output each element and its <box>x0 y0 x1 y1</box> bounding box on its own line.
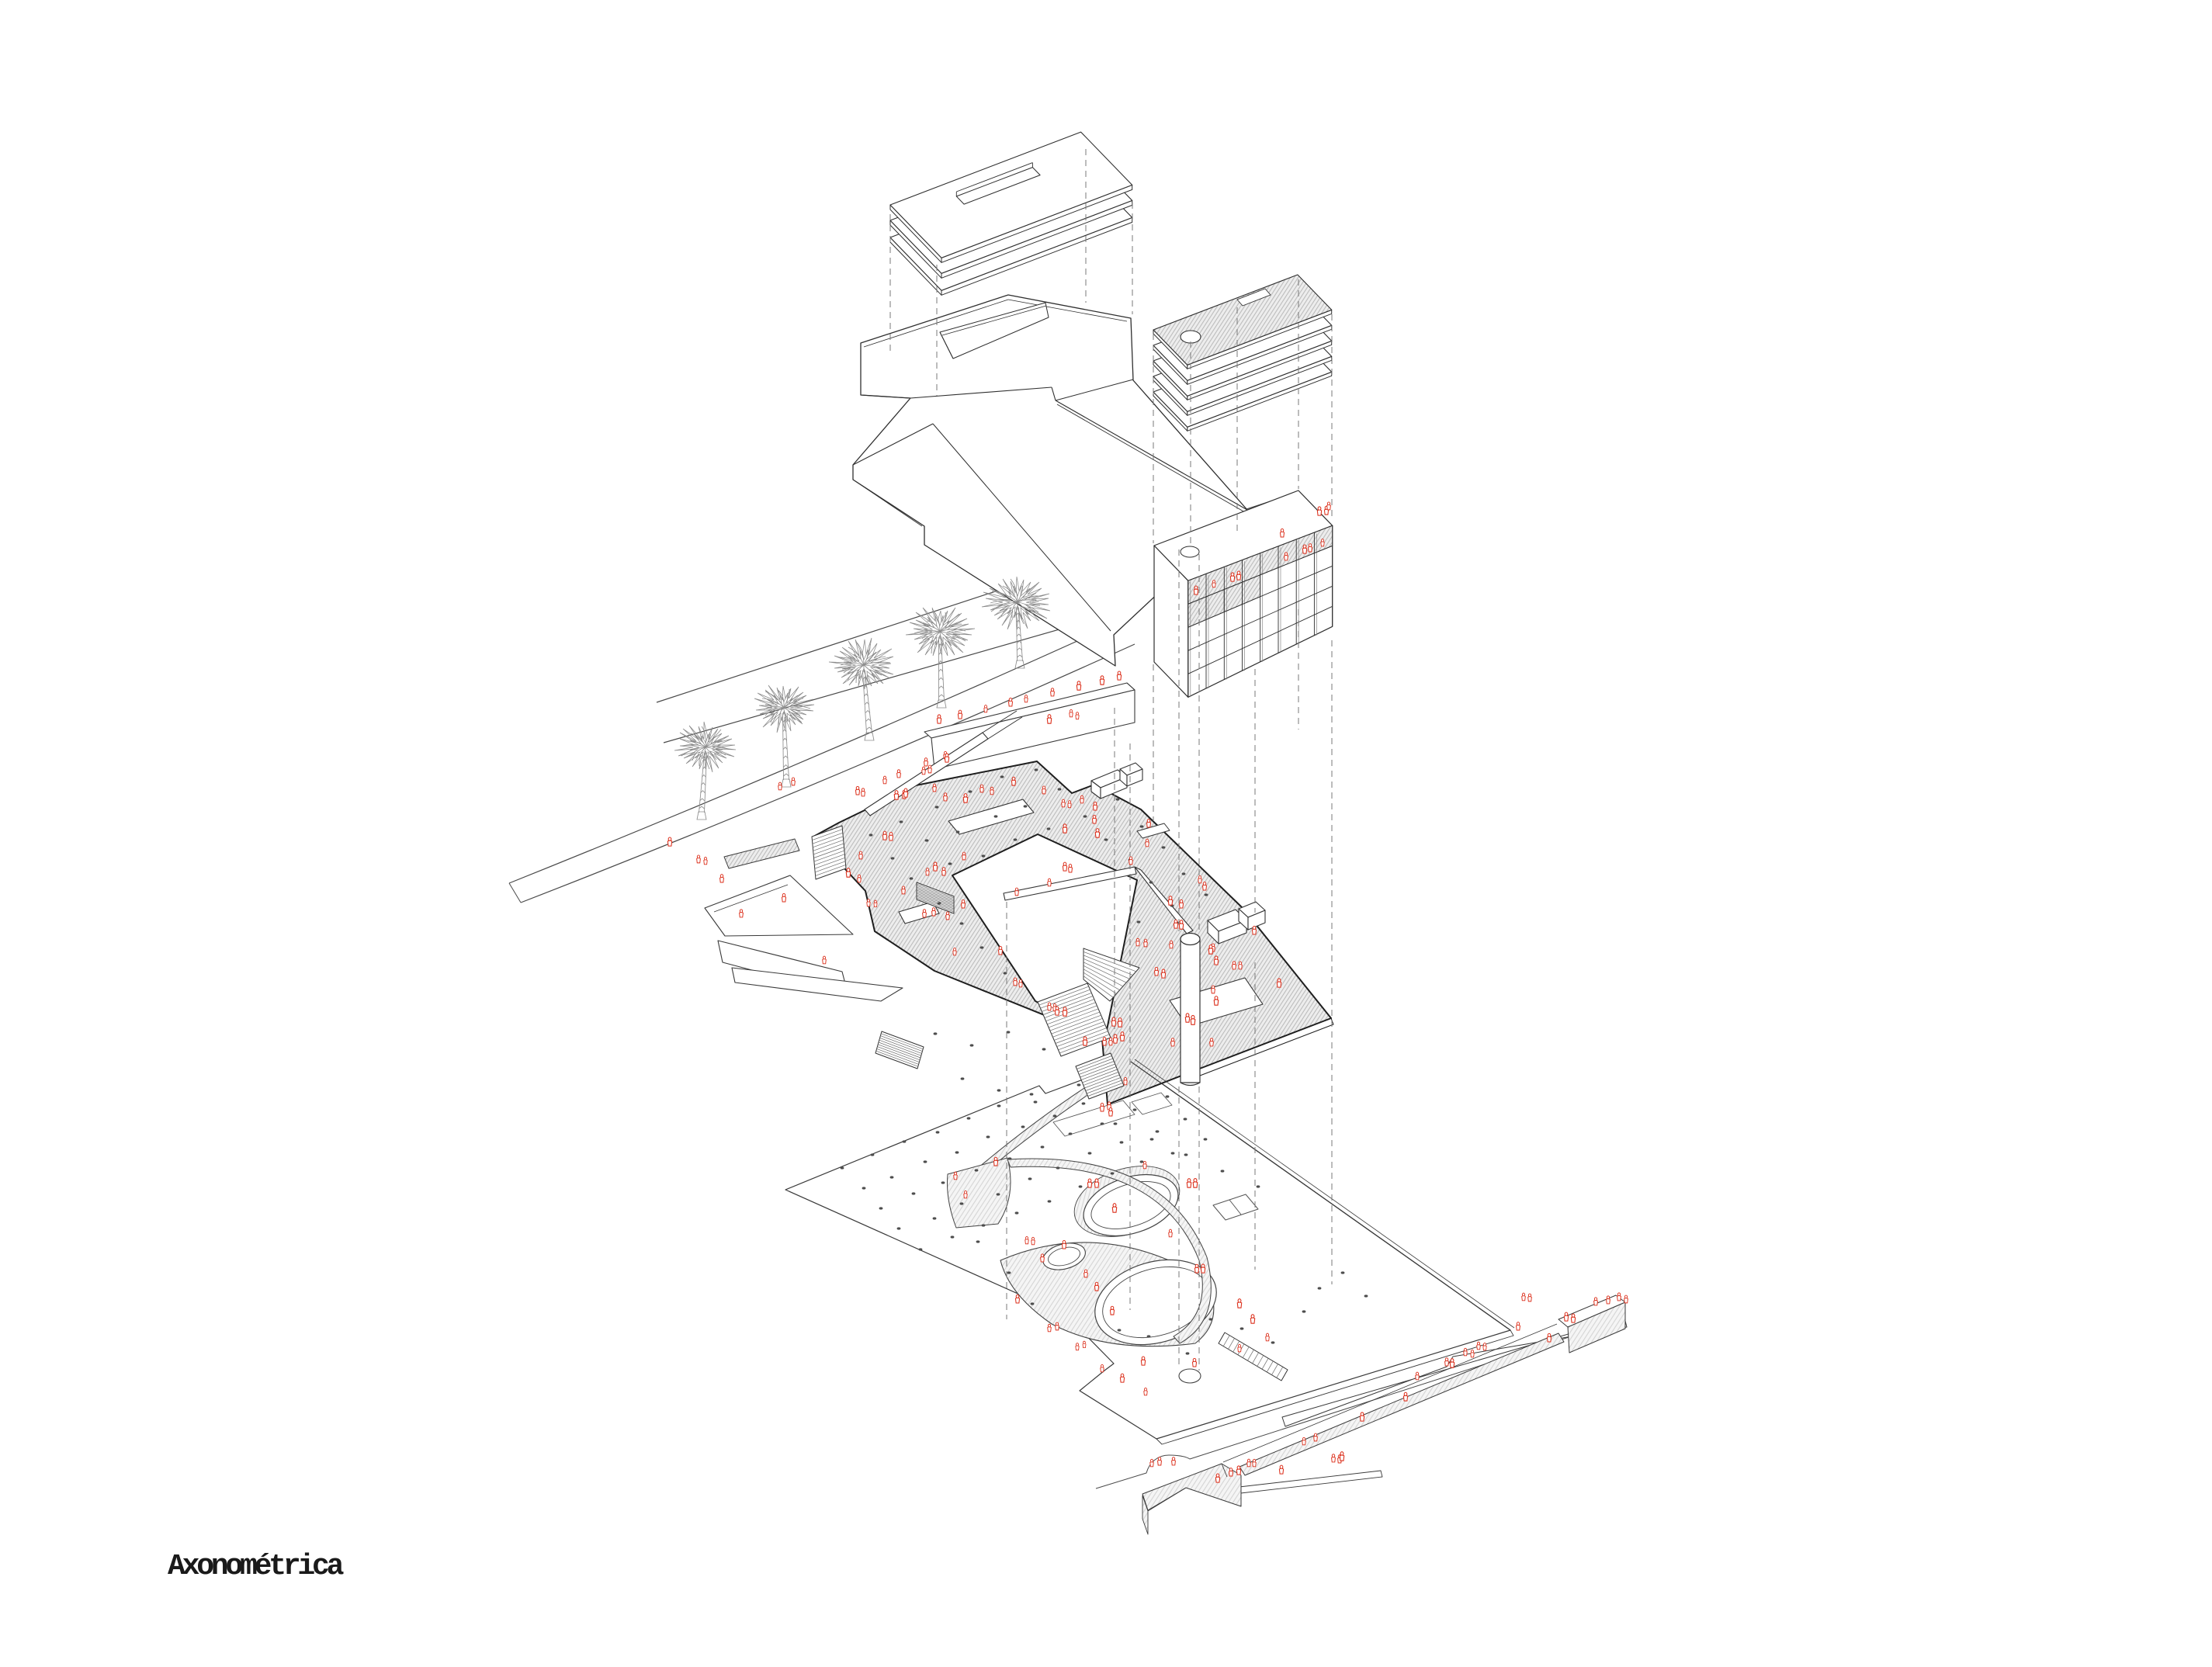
svg-text:Axonométrica: Axonométrica <box>168 1550 344 1583</box>
